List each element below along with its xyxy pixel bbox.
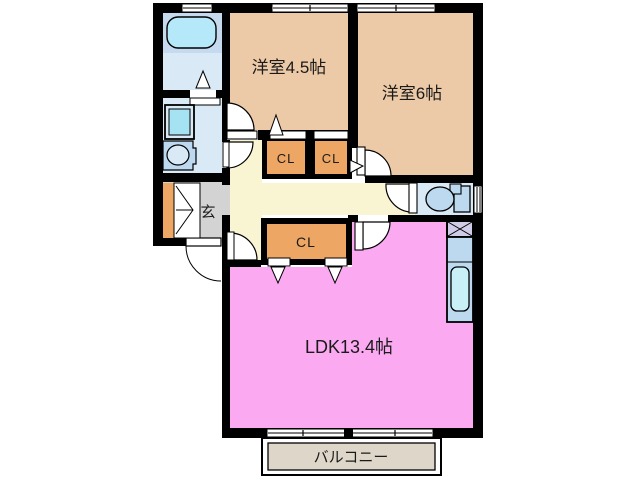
window-mullion bbox=[344, 428, 353, 438]
washing-machine-drum bbox=[169, 109, 190, 135]
bathroom-floor bbox=[163, 53, 222, 90]
wash-basin-bowl bbox=[167, 145, 189, 165]
wall-segment bbox=[153, 238, 188, 246]
closet-2-door-slab bbox=[314, 131, 348, 139]
wall-segment bbox=[163, 90, 191, 98]
closet-3-door-slab bbox=[325, 258, 347, 266]
wall-segment bbox=[348, 3, 358, 148]
hall-ldk-door-leaf bbox=[227, 232, 234, 260]
ldk-door-leaf bbox=[355, 222, 363, 250]
wall-segment bbox=[216, 90, 222, 98]
floorplan-image: 洋室4.5帖 洋室6帖 LDK13.4帖 CL CL CL 玄 バルコニー bbox=[0, 0, 638, 480]
toilet-door-leaf bbox=[409, 183, 417, 213]
room45-label: 洋室4.5帖 bbox=[252, 58, 327, 77]
entrance-door-leaf bbox=[186, 238, 221, 246]
ldk-door-opening bbox=[358, 215, 388, 222]
room6-door-leaf bbox=[357, 147, 365, 175]
bathtub bbox=[167, 17, 216, 48]
bath-door-sill bbox=[190, 98, 220, 105]
bath-door-opening bbox=[190, 90, 216, 98]
wall-segment bbox=[222, 168, 230, 185]
wall-segment bbox=[163, 173, 222, 182]
closet-1-label: CL bbox=[277, 151, 296, 166]
floorplan-drawing: 洋室4.5帖 洋室6帖 LDK13.4帖 CL CL CL 玄 バルコニー bbox=[0, 0, 638, 480]
ldk-label: LDK13.4帖 bbox=[305, 337, 393, 357]
genkan-passage-opening bbox=[222, 185, 230, 215]
balcony-label: バルコニー bbox=[314, 449, 389, 466]
room6-label: 洋室6帖 bbox=[382, 84, 442, 103]
closet-3-door-slab bbox=[268, 258, 290, 266]
room45-door-leaf bbox=[227, 131, 257, 139]
genkan-label: 玄 bbox=[200, 204, 215, 221]
wall-segment bbox=[473, 3, 483, 438]
washroom-door-leaf bbox=[223, 142, 229, 167]
closet-3-label: CL bbox=[296, 234, 316, 250]
toilet-bowl bbox=[426, 187, 454, 211]
entrance-door-arc bbox=[186, 246, 221, 281]
shoe-cabinet bbox=[163, 183, 174, 238]
kitchen-sink bbox=[451, 267, 469, 311]
wall-segment bbox=[153, 3, 163, 246]
wall-segment bbox=[222, 260, 261, 267]
toilet-window bbox=[474, 186, 482, 213]
closet-2-label: CL bbox=[322, 151, 341, 166]
